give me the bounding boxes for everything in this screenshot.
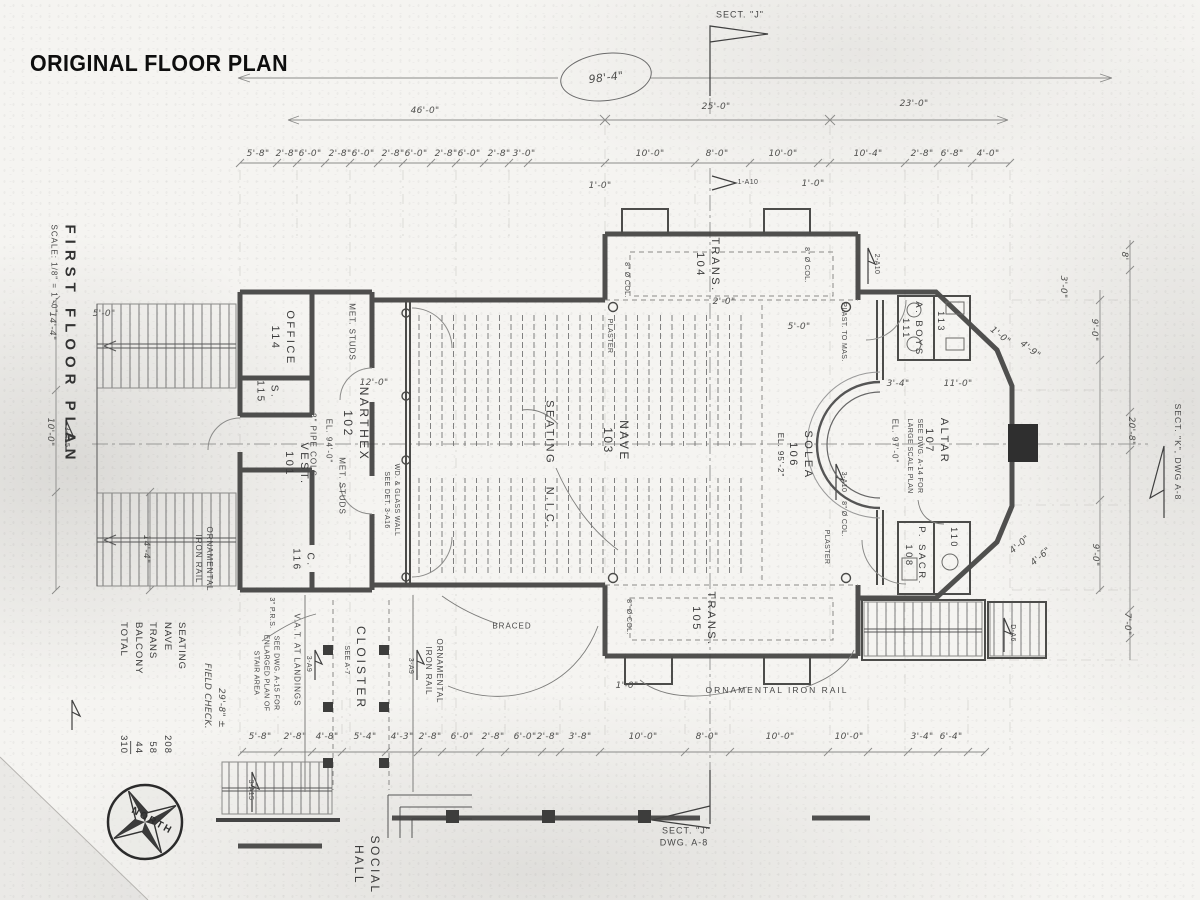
dim-label: 10'-0" <box>45 418 55 447</box>
dim-label: 29'-8" ± <box>216 688 226 728</box>
room-number: 101 <box>281 442 296 485</box>
room-label-115: S. 115 <box>254 380 281 403</box>
field-check-note: FIELD CHECK. <box>202 663 212 729</box>
table-row: TOTAL310 <box>116 622 130 754</box>
note-line: IRON RAIL <box>423 639 434 704</box>
room-name: NAVE <box>616 420 632 462</box>
room-name: S. <box>267 380 281 403</box>
note-col8: 8" Ø COL. <box>838 501 848 537</box>
note-line: ENLARGED PLAN OF <box>261 635 271 712</box>
flag-3-A9: 3-A9 <box>405 658 415 674</box>
room-number: 104 <box>692 237 707 292</box>
dim-label: 10'-0" <box>636 149 665 159</box>
row-value: 44 <box>130 741 145 754</box>
dim-label: 1'-0" <box>589 181 612 191</box>
dim-label: 2'-8" <box>284 732 307 742</box>
dim-label: 9'-0" <box>1089 319 1099 342</box>
section-label-right: SECT. "K", DWG A-8 <box>1171 404 1183 501</box>
room-label-nave: NAVE 103 <box>600 420 632 462</box>
note-braced: BRACED <box>492 620 531 631</box>
room-number: 103 <box>600 420 616 462</box>
note-col8: 8" Ø COL. <box>801 247 811 283</box>
altar-note: SEE DWG. A-14 FOR LARGE SCALE PLAN <box>904 418 924 493</box>
room-number: 106 <box>786 430 801 479</box>
note-line: SEE DWG. A-14 FOR <box>914 418 924 493</box>
room-label-narthex: NARTHEX 102 <box>340 387 372 462</box>
note-ornamental-rail: ORNAMENTAL IRON RAIL <box>193 527 215 592</box>
note-col8: 8" Ø COL. <box>623 599 633 635</box>
dim-label: 2'-8" <box>482 732 505 742</box>
dim-label: 6'-4" <box>940 732 963 742</box>
dim-label: 4'-0" <box>977 149 1000 159</box>
dim-label: 3'-0" <box>1058 276 1068 299</box>
dim-label: 1'-0" <box>802 179 825 189</box>
dim-label: 10'-0" <box>835 732 864 742</box>
note-plaster: PLASTER <box>604 319 614 354</box>
note-prs: 3" P.R.S. <box>266 597 276 628</box>
dim-label: 5'-0" <box>788 322 811 332</box>
flag-2-A10: 2-A10 <box>871 254 881 275</box>
dim-label: 10'-4" <box>854 149 883 159</box>
dim-label: 14'-4" <box>47 312 57 341</box>
blueprint-sheet: ORIGINAL FLOOR PLAN 98'-4" FIRST FLOOR P… <box>0 0 1200 900</box>
section-label-top: SECT. "J" <box>716 9 764 22</box>
room-label-116: C. 116 <box>290 548 317 571</box>
room-number: 105 <box>688 591 703 646</box>
note-el-94: EL. 94'-0" <box>323 419 334 464</box>
dim-label: 2'-8" <box>435 149 458 159</box>
room-label-altar: ALTAR 107 <box>921 418 951 464</box>
dim-label: 2'-8" <box>488 149 511 159</box>
dim-label: 6'-0" <box>405 149 428 159</box>
dim-label: 8' <box>1119 252 1129 261</box>
row-label: NAVE <box>160 622 174 651</box>
room-number: 108 <box>901 526 914 585</box>
room-number: 114 <box>267 310 282 365</box>
cloister-ref: SEE A-7 <box>341 645 351 674</box>
seating-title: SEATING <box>174 622 188 754</box>
room-name: ALTAR <box>936 418 951 464</box>
seating-table: SEATING NAVE208 TRANS58 BALCONY44 TOTAL3… <box>116 622 188 754</box>
row-value: 208 <box>160 735 174 754</box>
row-label: TOTAL <box>116 622 130 657</box>
room-number: 111 <box>898 301 911 357</box>
note-vat-landings: V.A.T. AT LANDINGS <box>291 614 302 707</box>
dim-label: 10'-0" <box>769 149 798 159</box>
dim-label: 2'-8" <box>382 149 405 159</box>
room-label-office: OFFICE 114 <box>267 310 297 365</box>
room-label-113: 113 <box>935 311 947 333</box>
flag-D-A6: D-A6 <box>1007 624 1017 642</box>
dim-label: 2'-0" <box>713 297 736 307</box>
dim-label: 2'-8" <box>419 732 442 742</box>
room-label-solea: SOLEA 106 EL. 95'-2" <box>775 430 815 479</box>
dim-label: 10'-0" <box>766 732 795 742</box>
room-label-altar-boys: A. BOYS 111 <box>898 301 924 357</box>
dim-label: 1'-0" <box>616 681 639 691</box>
note-col8: 8" Ø COL. <box>621 262 631 298</box>
row-value: 310 <box>116 735 130 754</box>
dim-label: 6'-8" <box>941 149 964 159</box>
dim-label: 11'-0" <box>944 379 973 389</box>
room-label-social-hall: SOCIAL HALL <box>351 835 383 894</box>
dim-label: 4'-8" <box>316 732 339 742</box>
room-name: TRANS. <box>703 591 718 646</box>
drawing-title: ORIGINAL FLOOR PLAN <box>30 50 288 77</box>
note-line: WD. & GLASS WALL <box>391 464 401 537</box>
table-row: NAVE208 <box>160 622 174 754</box>
section-label-bottom: SECT. "J" <box>662 825 710 838</box>
dim-label: 2'-8" <box>537 732 560 742</box>
dim-label: 10'-0" <box>629 732 658 742</box>
flag-3-A15: 3-A15 <box>245 780 255 801</box>
altar-elevation: EL. 97'-0" <box>889 419 900 464</box>
room-name: SOLEA <box>800 430 815 479</box>
dim-label: 7'-0" <box>1122 613 1132 636</box>
seating-nic-label: SEATING N.I.C. <box>542 400 557 530</box>
note-ornamental-rail: ORNAMENTAL IRON RAIL <box>423 639 445 704</box>
dim-label: 6'-0" <box>451 732 474 742</box>
room-number: 116 <box>290 548 304 571</box>
note-line: IRON RAIL <box>193 527 204 592</box>
note-line: ORNAMENTAL <box>204 527 215 592</box>
overall-dimension: 98'-4" <box>588 68 624 85</box>
dim-label: 20'-8" <box>1126 417 1136 446</box>
room-name: P. SACR. <box>914 526 927 585</box>
dim-label: 3'-8" <box>569 732 592 742</box>
note-line: STAIR AREA <box>251 635 261 712</box>
dim-label: 46'-0" <box>411 106 440 116</box>
dim-label: 23'-0" <box>900 99 929 109</box>
row-label: BALCONY <box>130 622 145 674</box>
dim-label: 8'-0" <box>706 149 729 159</box>
room-label-sacristy: P. SACR. 108 <box>901 526 927 585</box>
dim-label: 5'-8" <box>249 732 272 742</box>
note-glass-wall: WD. & GLASS WALL SEE DET. 3-A16 <box>381 464 401 537</box>
note-met-studs: MET. STUDS <box>336 457 347 515</box>
note-line: SEE DET. 3-A16 <box>381 464 391 537</box>
dim-label: 3'-4" <box>911 732 934 742</box>
room-name: HALL <box>351 835 367 894</box>
dim-label: 3'-0" <box>513 149 536 159</box>
table-row: BALCONY44 <box>130 622 145 754</box>
dim-label: 6'-0" <box>514 732 537 742</box>
flag-3-A15: 3-A15 <box>61 427 71 448</box>
room-number: 102 <box>340 387 356 462</box>
room-name: SOCIAL <box>367 835 383 894</box>
note-plaster: PLASTER <box>821 530 831 565</box>
dim-label: 2'-8" <box>329 149 352 159</box>
room-name: A. BOYS <box>911 301 924 357</box>
note-met-studs: MET. STUDS <box>346 303 357 361</box>
dim-label: 3'-4" <box>887 379 910 389</box>
dim-label: 6'-0" <box>299 149 322 159</box>
flag-3-A10: 3-A10 <box>838 472 848 493</box>
room-name: TRANS. <box>707 237 722 292</box>
room-label-trans-105: TRANS. 105 <box>688 591 718 646</box>
note-line: SEE DWG. A-15 FOR <box>271 635 281 712</box>
dim-label: 8'-0" <box>696 732 719 742</box>
room-name: NARTHEX <box>356 387 372 462</box>
note-line: ORNAMENTAL <box>434 639 445 704</box>
dim-label: 5'-0" <box>93 309 116 319</box>
dim-label: 5'-4" <box>354 732 377 742</box>
dim-label: 25'-0" <box>702 102 731 112</box>
flag-3-A9: 3-A9 <box>303 656 313 672</box>
room-label-cloister: CLOISTER <box>353 626 369 710</box>
dim-label: 4'-3" <box>391 732 414 742</box>
room-label-110: 110 <box>948 527 960 549</box>
note-stair-area: SEE DWG. A-15 FOR ENLARGED PLAN OF STAIR… <box>251 635 280 712</box>
dim-label: 14'-4" <box>141 535 151 564</box>
row-label: TRANS <box>145 622 159 659</box>
flag-1-A10: 1-A10 <box>738 178 759 188</box>
dim-label: 6'-0" <box>352 149 375 159</box>
dim-label: 2'-8" <box>911 149 934 159</box>
row-value: 58 <box>145 741 159 754</box>
dim-label: 6'-0" <box>458 149 481 159</box>
note-plaster-masonry: PLAST. TO MAS. <box>838 302 848 361</box>
room-name: OFFICE <box>282 310 297 365</box>
table-row: TRANS58 <box>145 622 159 754</box>
note-ornamental-rail: ORNAMENTAL IRON RAIL <box>706 685 849 697</box>
room-label-vest: VEST. 101 <box>281 442 311 485</box>
dim-label: 9'-0" <box>1090 544 1100 567</box>
room-label-trans-104: TRANS. 104 <box>692 237 722 292</box>
room-elevation: EL. 95'-2" <box>775 430 786 479</box>
room-number: 115 <box>254 380 268 403</box>
dim-label: 2'-8" <box>276 149 299 159</box>
room-name: C. <box>303 548 317 571</box>
note-pipe-cols: 3" PIPE COLS <box>307 413 318 477</box>
dim-label: 5'-8" <box>247 149 270 159</box>
note-line: LARGE SCALE PLAN <box>904 418 914 493</box>
section-dwg-ref: DWG. A-8 <box>660 837 709 850</box>
